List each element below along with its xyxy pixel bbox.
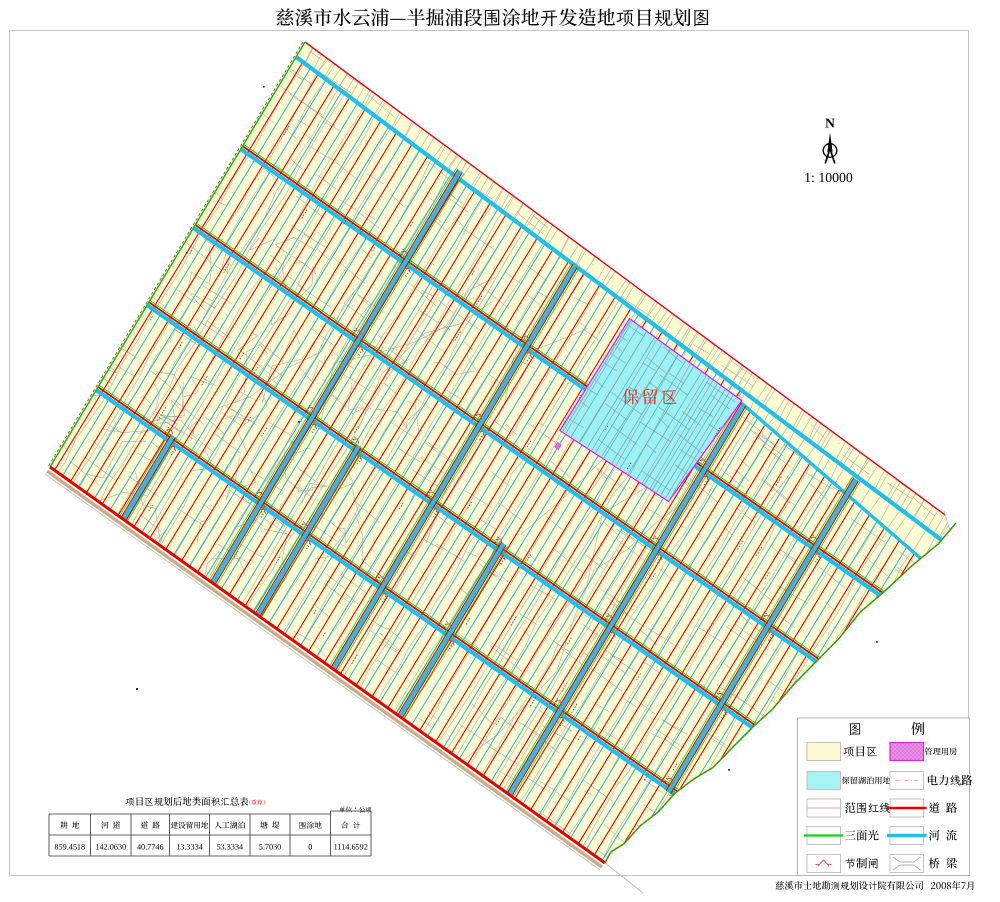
- svg-text:53.3334: 53.3334: [216, 843, 243, 852]
- svg-text:40.7746: 40.7746: [137, 843, 164, 852]
- svg-text:142.0630: 142.0630: [95, 843, 126, 852]
- svg-text:13.3334: 13.3334: [176, 843, 203, 852]
- svg-text:1114.6592: 1114.6592: [334, 843, 368, 852]
- svg-text:N: N: [825, 116, 835, 131]
- svg-text:5.7030: 5.7030: [259, 843, 282, 852]
- svg-text:1: 10000: 1: 10000: [804, 170, 853, 185]
- svg-text:0: 0: [308, 843, 312, 852]
- svg-text:859.4518: 859.4518: [54, 843, 85, 852]
